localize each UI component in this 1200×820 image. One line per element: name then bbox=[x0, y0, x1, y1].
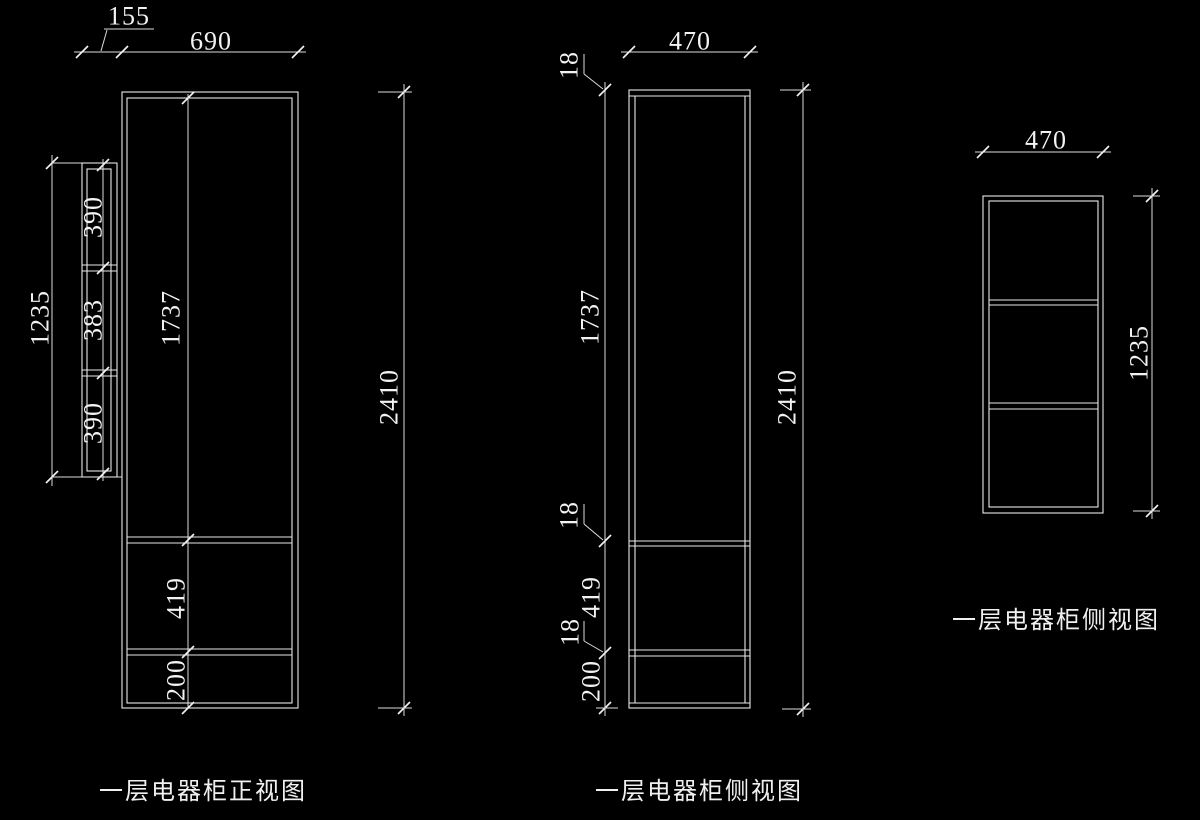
side-thickness-leaders bbox=[584, 54, 603, 652]
dim-front-drawer-height: 419 bbox=[162, 577, 191, 619]
side-view: 470 18 1737 18 419 18 200 2410 一层电器柜侧视图 bbox=[555, 27, 812, 806]
dim-front-side-seg-middle: 383 bbox=[79, 299, 108, 341]
dim-upper-height: 1235 bbox=[1125, 325, 1154, 381]
dim-front-side-offset: 155 bbox=[108, 2, 150, 31]
dim-upper-width: 470 bbox=[1025, 126, 1067, 155]
front-height-chain-dimension bbox=[182, 92, 194, 714]
dim-side-base-height: 200 bbox=[577, 660, 606, 702]
upper-cabinet-side-view-title: 一层电器柜侧视图 bbox=[952, 606, 1160, 634]
dim-front-base-height: 200 bbox=[162, 659, 191, 701]
front-view: 155 690 1235 390 383 390 1737 419 200 24… bbox=[26, 2, 413, 806]
dim-front-side-seg-bottom: 390 bbox=[79, 402, 108, 444]
dim-side-top-panel: 18 bbox=[555, 51, 584, 79]
dim-side-width: 470 bbox=[669, 27, 711, 56]
dim-front-side-panel-height: 1235 bbox=[26, 290, 55, 346]
dim-front-door-height: 1737 bbox=[157, 290, 186, 346]
side-cabinet-outline bbox=[629, 90, 750, 708]
dim-side-door-height: 1737 bbox=[576, 289, 605, 345]
cad-drawing-canvas: 155 690 1235 390 383 390 1737 419 200 24… bbox=[0, 0, 1200, 820]
dim-side-shelf-upper: 18 bbox=[555, 501, 584, 529]
upper-cabinet-outline bbox=[983, 196, 1103, 513]
front-view-title: 一层电器柜正视图 bbox=[99, 777, 307, 805]
dim-side-drawer-height: 419 bbox=[577, 576, 606, 618]
front-cabinet-outline bbox=[122, 92, 298, 708]
dim-front-total-height: 2410 bbox=[375, 369, 404, 425]
dim-side-total-height: 2410 bbox=[773, 369, 802, 425]
dim-front-width: 690 bbox=[190, 27, 232, 56]
upper-cabinet-side-view: 470 1235 一层电器柜侧视图 bbox=[952, 126, 1160, 635]
dim-side-shelf-lower: 18 bbox=[556, 618, 585, 646]
dim-front-side-seg-top: 390 bbox=[79, 196, 108, 238]
side-height-chain-dimension bbox=[596, 82, 618, 716]
side-view-title: 一层电器柜侧视图 bbox=[595, 777, 803, 805]
